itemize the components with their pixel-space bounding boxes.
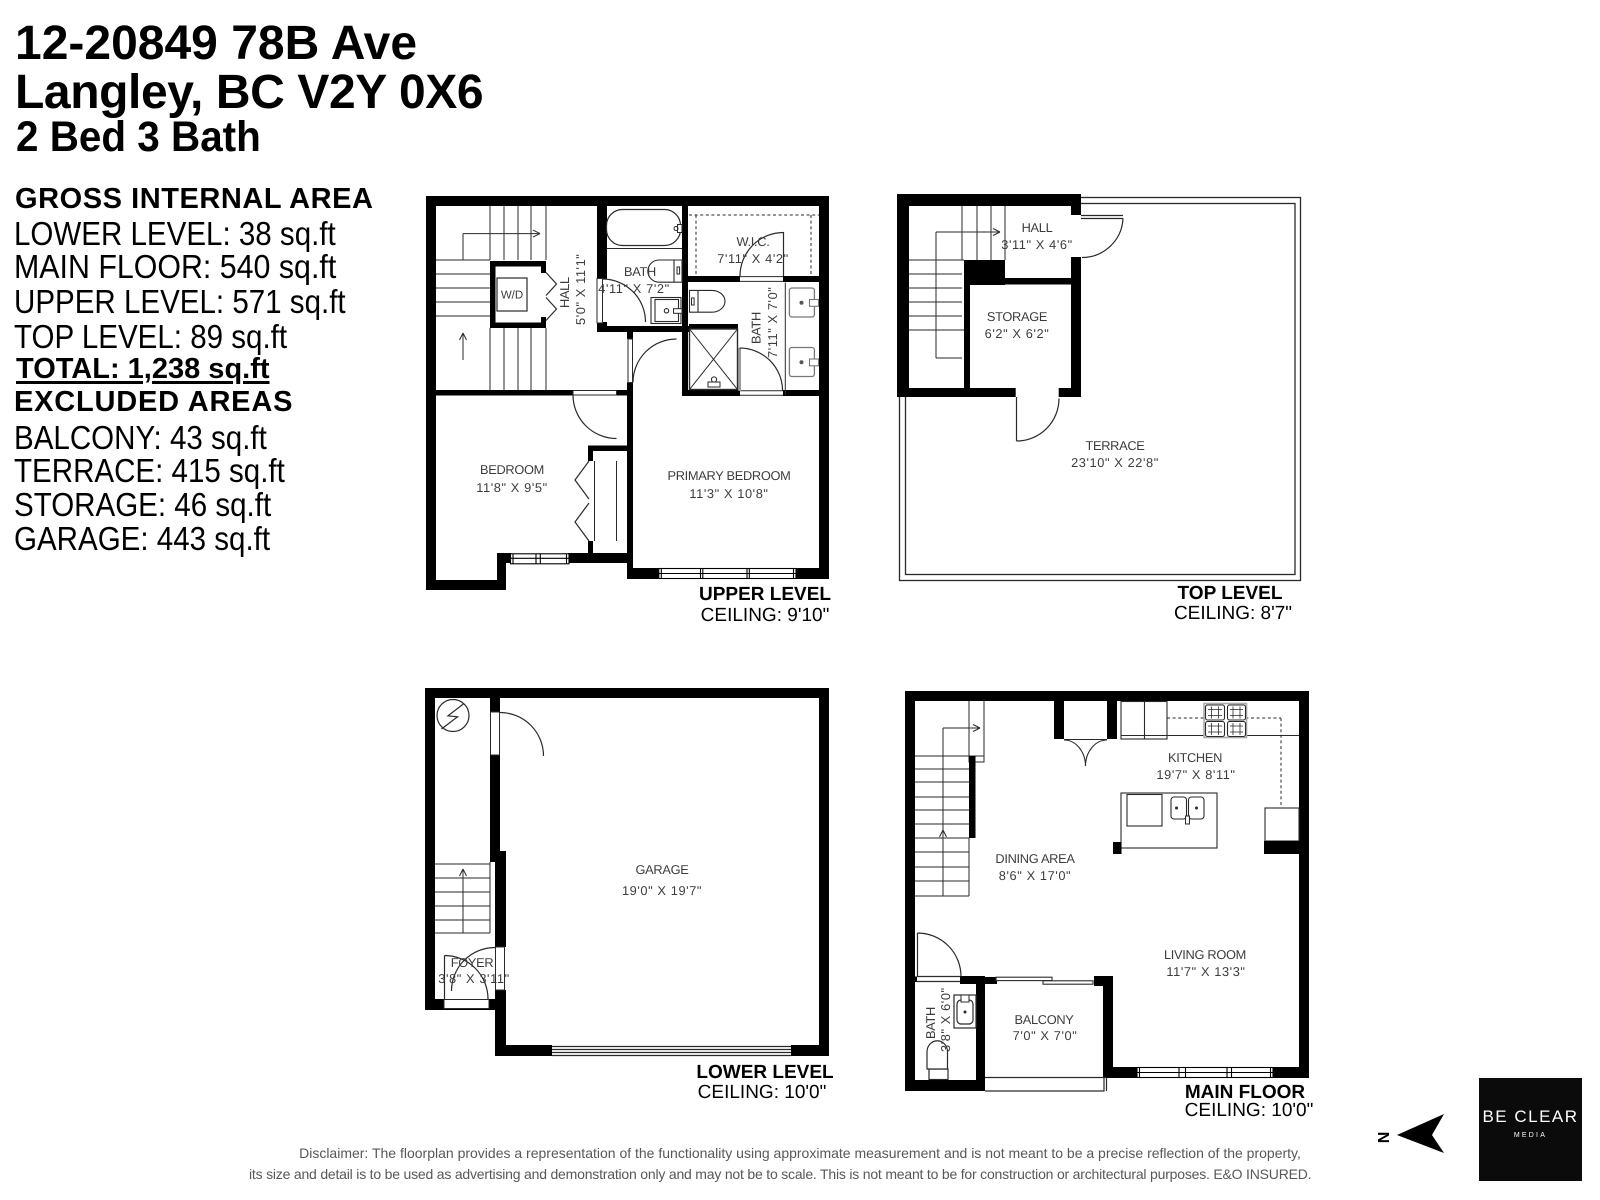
svg-text:LIVING ROOM: LIVING ROOM [1164,947,1246,962]
svg-text:5'0" X 11'1": 5'0" X 11'1" [573,254,588,325]
svg-text:11'8" X 9'5": 11'8" X 9'5" [476,480,547,495]
svg-text:BATH: BATH [749,312,764,344]
svg-text:KITCHEN: KITCHEN [1168,750,1222,765]
svg-text:TERRACE: TERRACE [1085,438,1144,453]
svg-text:BATH: BATH [923,1007,938,1039]
svg-text:7'0" X 7'0": 7'0" X 7'0" [1013,1028,1078,1043]
svg-text:N: N [1376,1132,1393,1144]
svg-text:BATH: BATH [624,264,656,279]
svg-text:TOP LEVEL: TOP LEVEL [1178,583,1283,604]
svg-text:STORAGE: STORAGE [987,309,1047,324]
svg-text:7'11" X 4'2": 7'11" X 4'2" [717,251,788,266]
svg-text:7'11" X 7'0": 7'11" X 7'0" [765,287,780,358]
svg-text:FOYER: FOYER [451,955,494,970]
svg-text:23'10" X 22'8": 23'10" X 22'8" [1071,455,1159,470]
svg-text:CEILING: 10'0": CEILING: 10'0" [698,1082,827,1103]
svg-text:19'7" X 8'11": 19'7" X 8'11" [1156,767,1235,782]
svg-text:BALCONY: BALCONY [1014,1012,1074,1027]
svg-text:3'11" X 4'6": 3'11" X 4'6" [1001,237,1072,252]
svg-text:3'8" X 3'11": 3'8" X 3'11" [438,971,509,986]
svg-text:11'7" X 13'3": 11'7" X 13'3" [1166,964,1245,979]
svg-text:W.I.C.: W.I.C. [736,234,769,249]
svg-text:UPPER LEVEL: UPPER LEVEL [699,584,831,605]
svg-text:W/D: W/D [501,290,523,302]
svg-text:6'2" X 6'2": 6'2" X 6'2" [985,326,1050,341]
svg-text:CEILING: 10'0": CEILING: 10'0" [1185,1100,1314,1121]
svg-text:19'0" X 19'7": 19'0" X 19'7" [622,883,702,898]
svg-text:4'11" X 7'2": 4'11" X 7'2" [598,281,669,296]
svg-text:8'6" X 17'0": 8'6" X 17'0" [999,868,1071,883]
svg-text:11'3" X 10'8": 11'3" X 10'8" [689,486,768,501]
svg-text:BEDROOM: BEDROOM [480,462,544,477]
svg-text:LOWER LEVEL: LOWER LEVEL [696,1062,834,1083]
svg-text:CEILING: 9'10": CEILING: 9'10" [701,605,830,626]
svg-text:HALL: HALL [1022,220,1053,235]
svg-text:3'8" X 6'0": 3'8" X 6'0" [938,987,953,1052]
svg-text:PRIMARY BEDROOM: PRIMARY BEDROOM [667,468,790,483]
svg-text:DINING AREA: DINING AREA [995,851,1075,866]
svg-text:CEILING: 8'7": CEILING: 8'7" [1174,603,1292,624]
svg-text:GARAGE: GARAGE [636,862,689,877]
svg-text:HALL: HALL [557,277,572,308]
